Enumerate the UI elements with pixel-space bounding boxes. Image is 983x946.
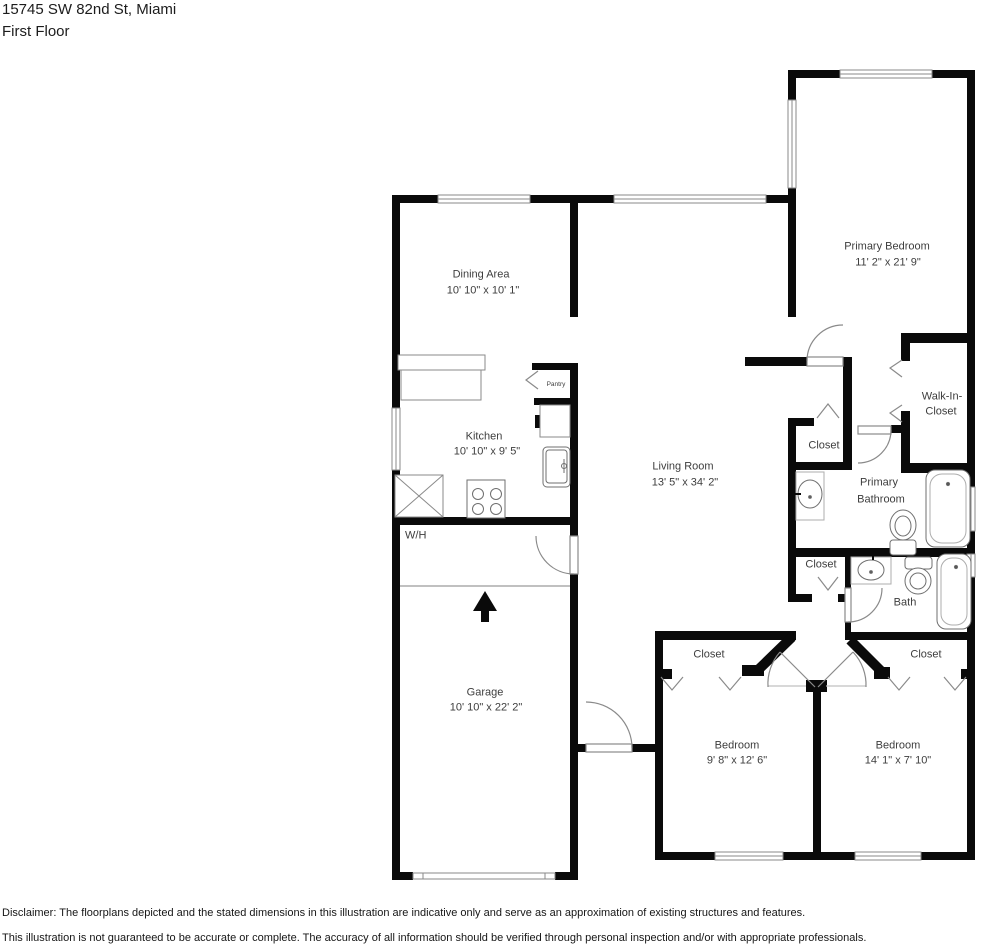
bedroom-right-window	[855, 852, 921, 860]
primary-bedroom-door	[807, 325, 843, 366]
range-stove	[467, 480, 505, 518]
water-heater-door	[536, 536, 578, 574]
primary-bathroom-door	[858, 426, 891, 463]
room-label-pantry: Pantry	[547, 382, 566, 389]
room-label-water-heater: W/H	[405, 531, 426, 542]
room-label-kitchen: Kitchen	[466, 432, 503, 443]
room-dims-dining: 10' 10" x 10' 1"	[447, 286, 520, 297]
primary-bedroom-side-window	[788, 100, 796, 188]
bath-fixtures	[851, 549, 971, 629]
garage-details	[400, 586, 570, 622]
bath-sink	[858, 560, 884, 580]
kitchen-counter-lower	[401, 370, 481, 400]
room-label-walk-in-closet-line1: Walk-In-	[922, 392, 963, 403]
room-label-bedroom-left: Bedroom	[715, 741, 760, 752]
bedroom-left-closet-chevron-2	[719, 677, 741, 690]
room-dims-primary-bedroom: 11' 2" x 21' 9"	[855, 258, 921, 269]
kitchen-counter-top	[398, 355, 485, 370]
bath-toilet	[905, 557, 932, 594]
room-dims-bedroom-right: 14' 1" x 7' 10"	[865, 756, 931, 767]
room-label-primary-bathroom-line1: Primary	[860, 478, 898, 489]
disclaimer-line1: Disclaimer: The floorplans depicted and …	[2, 907, 805, 919]
living-room-window	[614, 195, 766, 203]
primary-toilet	[890, 510, 916, 555]
bath-bathtub	[937, 554, 971, 629]
room-dims-bedroom-left: 9' 8" x 12' 6"	[707, 756, 767, 767]
pantry-door-chevron	[526, 371, 538, 389]
refrigerator	[395, 475, 443, 517]
room-label-bedroom-right-closet: Closet	[910, 650, 941, 661]
dining-window	[438, 195, 530, 203]
room-label-primary-bathroom-line2: Bathroom	[857, 495, 905, 506]
room-label-garage: Garage	[467, 688, 504, 699]
room-label-bath: Bath	[894, 598, 917, 609]
room-label-bedroom-left-closet: Closet	[693, 650, 724, 661]
primary-sink	[798, 480, 822, 508]
floorplan-drawing	[0, 0, 983, 946]
room-label-walk-in-closet-line2: Closet	[925, 407, 956, 418]
room-label-bedroom-right: Bedroom	[876, 741, 921, 752]
bedroom-left-window	[715, 852, 783, 860]
linen-closet-chevron	[818, 577, 838, 590]
room-dims-kitchen: 10' 10" x 9' 5"	[454, 447, 520, 458]
primary-bedroom-top-window	[840, 70, 932, 78]
entry-door	[586, 702, 632, 752]
primary-bathtub	[926, 470, 970, 547]
room-label-hall-closet: Closet	[808, 441, 839, 452]
floorplan-page: 15745 SW 82nd St, Miami First Floor	[0, 0, 983, 946]
room-label-linen-closet: Closet	[805, 560, 836, 571]
hall-closet-chevron	[817, 404, 839, 418]
doors	[536, 325, 891, 752]
bedroom-right-closet-chevron-1	[888, 677, 910, 690]
kitchen-window	[392, 408, 400, 470]
room-dims-living: 13' 5" x 34' 2"	[652, 478, 718, 489]
garage-door	[413, 873, 555, 879]
room-label-living: Living Room	[652, 462, 713, 473]
kitchen-sink	[543, 447, 570, 487]
room-dims-garage: 10' 10" x 22' 2"	[450, 703, 523, 714]
walkin-door-chevron-1	[890, 360, 902, 377]
room-label-primary-bedroom: Primary Bedroom	[844, 242, 930, 253]
room-label-dining: Dining Area	[453, 270, 510, 281]
walkin-door-chevron-2	[890, 405, 902, 422]
north-arrow-icon	[473, 591, 497, 622]
kitchen-cabinet	[540, 405, 570, 437]
disclaimer-line2: This illustration is not guaranteed to b…	[2, 932, 866, 944]
bath-door	[845, 588, 882, 622]
